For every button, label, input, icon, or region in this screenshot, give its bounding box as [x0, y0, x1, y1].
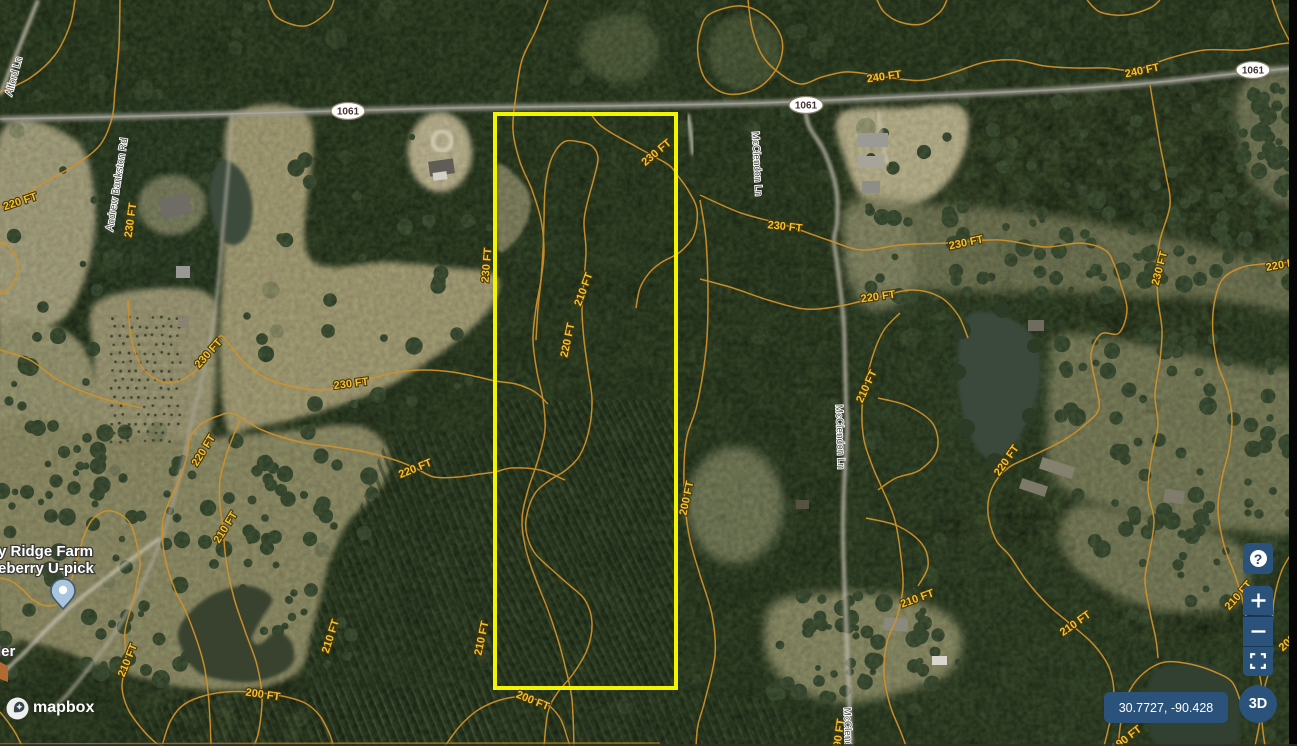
svg-text:eberry U-pick: eberry U-pick — [0, 560, 95, 577]
svg-text:ler: ler — [0, 643, 16, 660]
svg-text:McClendon Ln: McClendon Ln — [833, 404, 846, 469]
svg-text:McClendon L: McClendon L — [841, 707, 854, 746]
svg-text:1061: 1061 — [795, 101, 818, 112]
svg-text:1061: 1061 — [1242, 66, 1265, 77]
svg-text:y Ridge Farm: y Ridge Farm — [0, 543, 93, 560]
svg-text:1061: 1061 — [337, 107, 360, 118]
